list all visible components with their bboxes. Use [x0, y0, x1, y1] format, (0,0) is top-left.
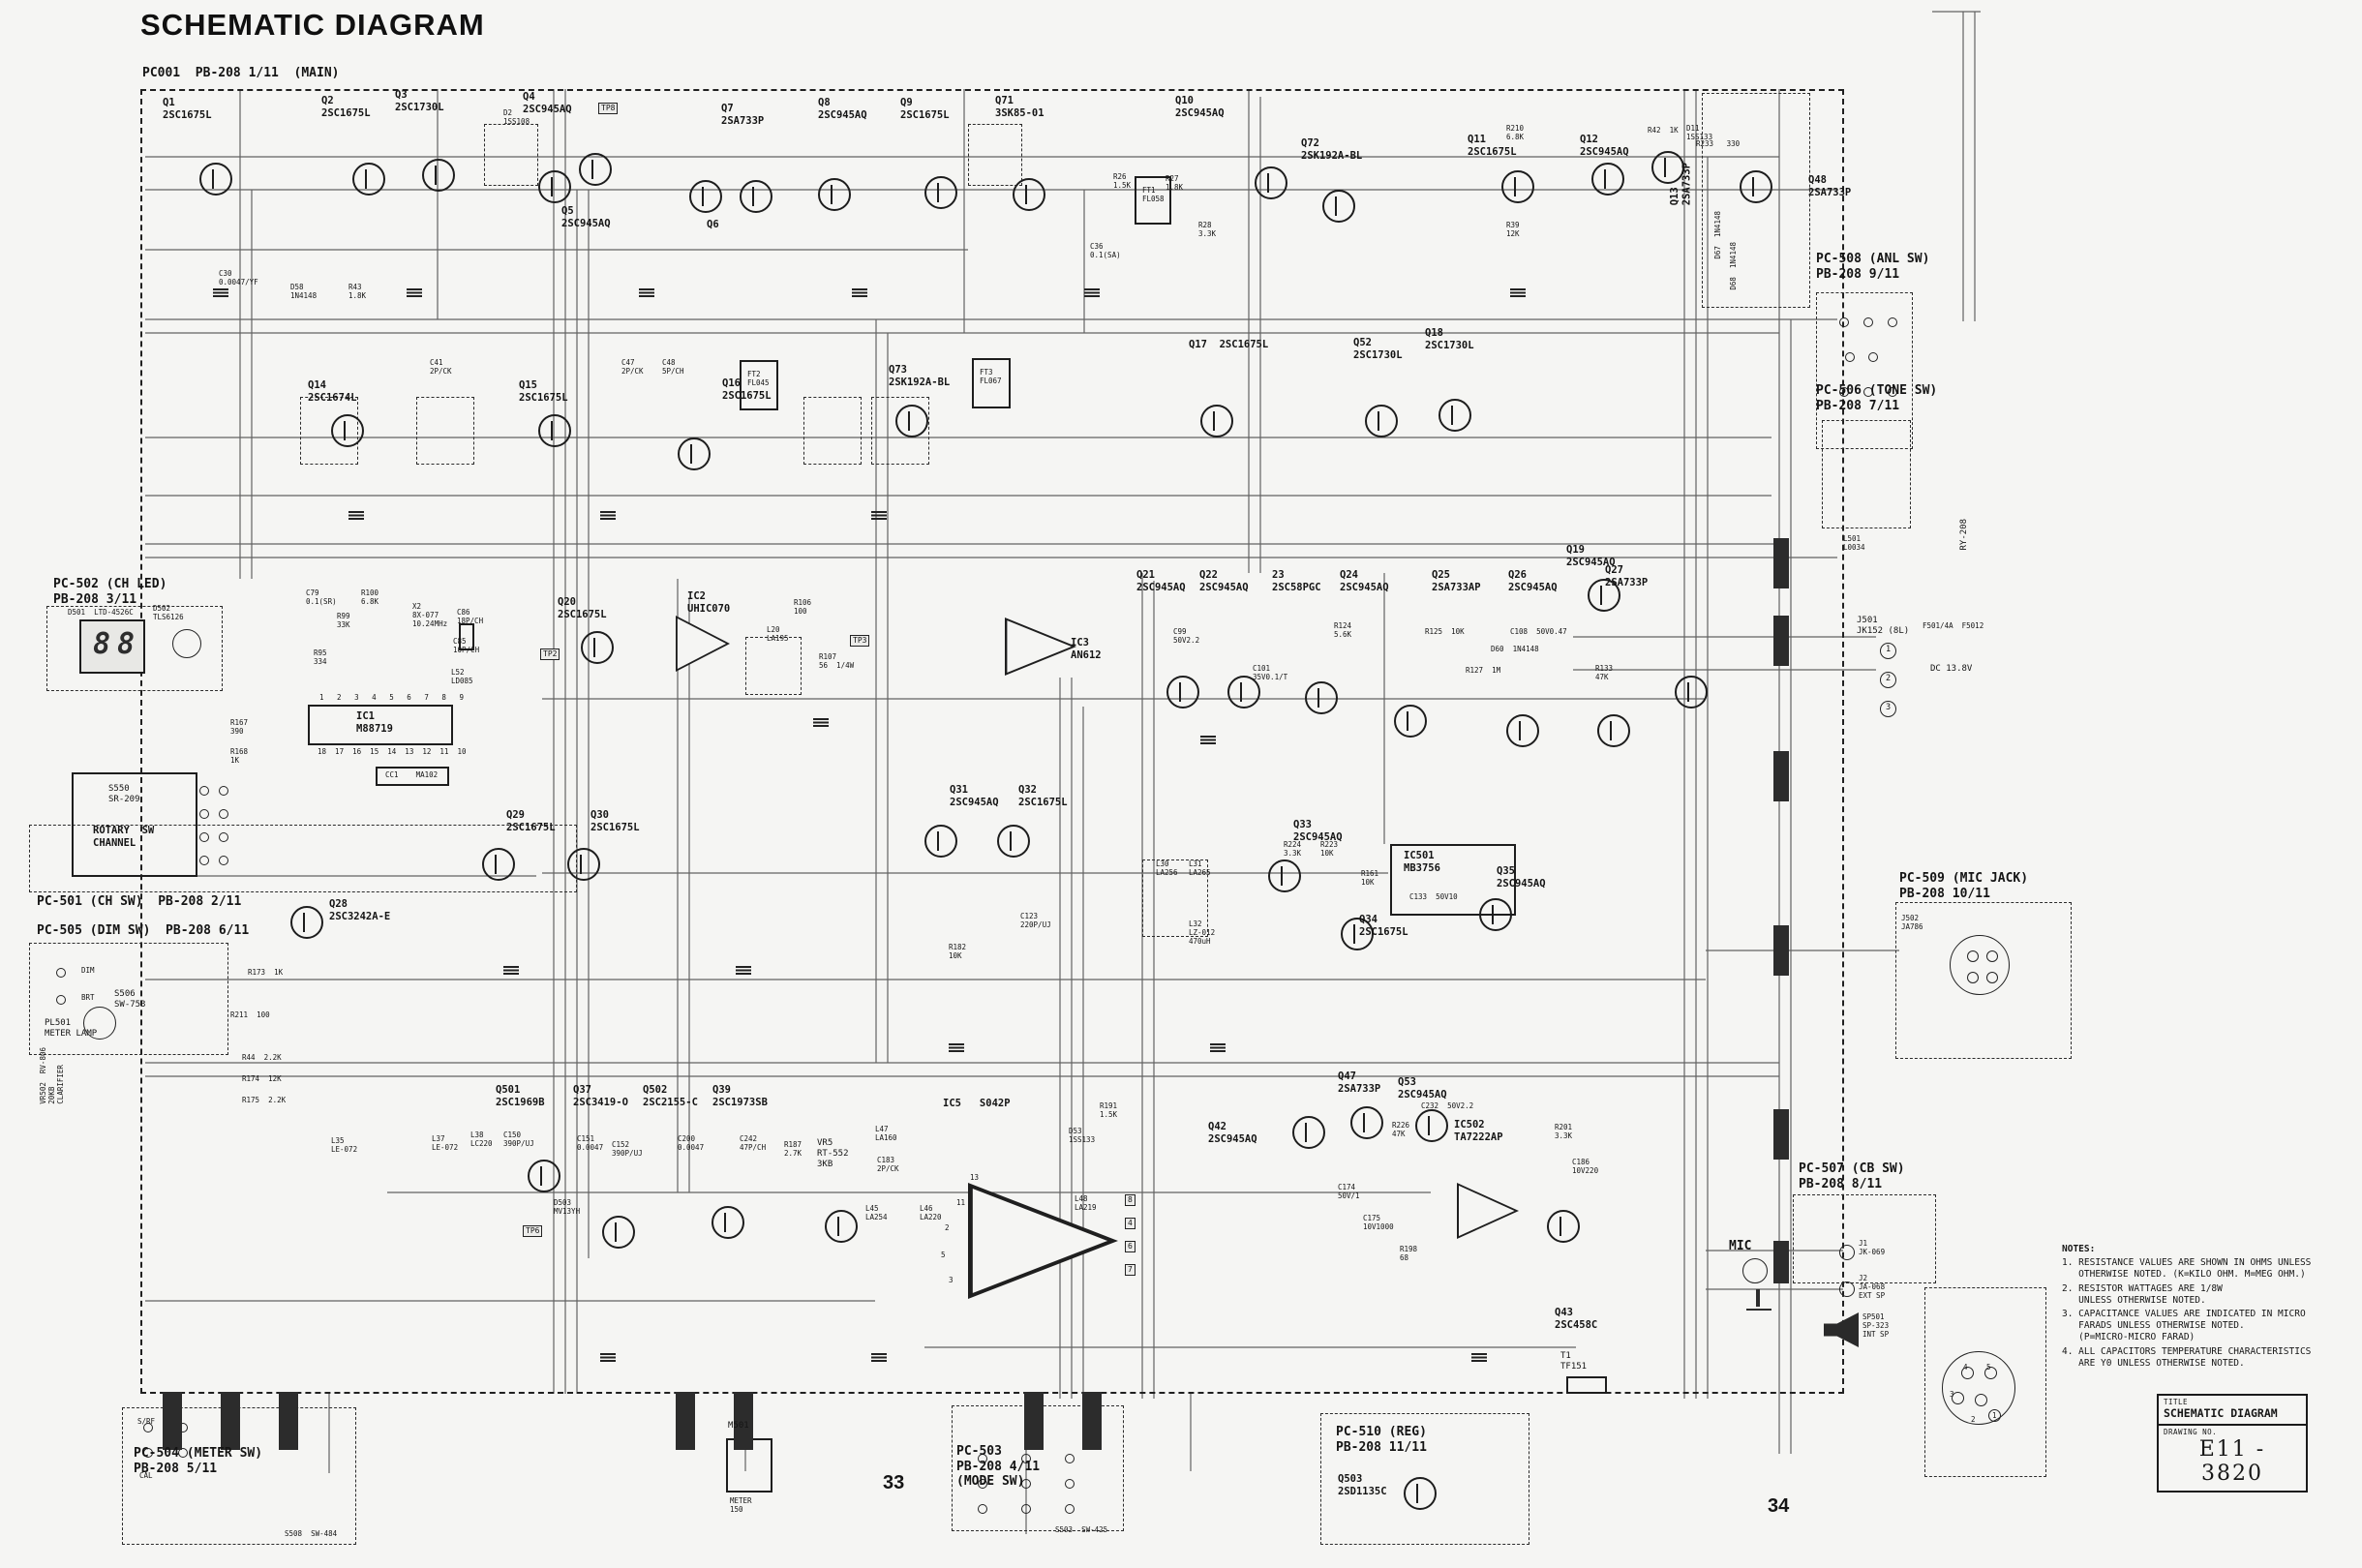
schematic-label: BRT — [81, 993, 95, 1002]
schematic-label: Q31 2SC945AQ — [950, 784, 999, 808]
board-label-pc507: PC-507 (CB SW) PB-208 8/11 — [1799, 1161, 1905, 1191]
gnd-symbol — [1200, 736, 1216, 744]
circle-symbol — [219, 832, 228, 842]
note-item: 4. ALL CAPACITORS TEMPERATURE CHARACTERI… — [2062, 1346, 2352, 1370]
schematic-label: Q13 2SA733P — [1669, 163, 1693, 205]
schematic-label: L501 L0034 — [1843, 534, 1865, 552]
schematic-label: J502 JA786 — [1901, 914, 1923, 931]
schematic-label: M501 — [728, 1421, 749, 1432]
schematic-label: L45 LA254 — [865, 1204, 888, 1221]
schematic-label: Q52 2SC1730L — [1353, 337, 1403, 361]
npn-symbol — [997, 825, 1030, 858]
npn-symbol — [538, 414, 571, 447]
schematic-label: IC2 UHIC070 — [687, 590, 730, 615]
schematic-label: 23 2SC58PGC — [1272, 569, 1321, 593]
npn-symbol — [895, 405, 928, 437]
schematic-label: C101 35V0.1/T — [1253, 664, 1287, 681]
drawing-title: SCHEMATIC DIAGRAM — [2164, 1406, 2301, 1420]
npn-symbol — [1292, 1116, 1325, 1149]
schematic-label: Q12 2SC945AQ — [1580, 134, 1629, 158]
schematic-label: R168 1K — [230, 747, 248, 765]
schematic-label: R107 56 1/4W — [819, 652, 854, 670]
schematic-label: R95 334 — [314, 648, 327, 666]
circle-symbol — [978, 1504, 987, 1514]
page-number-34: 34 — [1768, 1494, 1789, 1518]
schematic-label: R174 12K — [242, 1074, 282, 1083]
schematic-label: RY-208 — [1959, 519, 1970, 551]
schematic-label: R106 100 — [794, 598, 811, 616]
schematic-label: Q72 2SK192A-BL — [1301, 137, 1362, 162]
schematic-label: R173 1K — [248, 968, 283, 977]
gnd-symbol — [871, 511, 887, 520]
schematic-label: C183 2P/CK — [877, 1156, 899, 1173]
schematic-label: Q26 2SC945AQ — [1508, 569, 1558, 593]
schematic-label: R224 3.3K — [1284, 840, 1301, 858]
schematic-label: D58 1N4148 — [290, 283, 317, 300]
schematic-label: J1 JK-069 — [1859, 1239, 1885, 1256]
schematic-label: TP3 — [850, 635, 869, 647]
schematic-label: Q1 2SC1675L — [163, 97, 212, 121]
schematic-label: L31 LA265 — [1189, 859, 1211, 877]
gnd-symbol — [1210, 1043, 1226, 1052]
npn-symbol — [740, 180, 772, 213]
note-item: 2. RESISTOR WATTAGES ARE 1/8W UNLESS OTH… — [2062, 1283, 2352, 1307]
coil-can — [416, 397, 474, 465]
schematic-sheet: SCHEMATIC DIAGRAM PC001 PB-208 1/11 (MAI… — [0, 0, 2362, 1568]
schematic-label: L35 LE-072 — [331, 1136, 357, 1154]
gnd-symbol — [213, 288, 228, 297]
schematic-label: T1 TF151 — [1560, 1351, 1587, 1372]
schematic-label: MIC — [1729, 1239, 1751, 1254]
npn-symbol — [1394, 705, 1427, 738]
circle-symbol — [1967, 950, 1979, 962]
schematic-label: R28 3.3K — [1198, 221, 1216, 238]
npn-symbol — [199, 163, 232, 196]
connector-stub — [1773, 1241, 1789, 1283]
schematic-label: VR502 RV-806 20KB CLARIFIER — [39, 1047, 65, 1104]
gnd-symbol — [348, 511, 364, 520]
schematic-label: Q30 2SC1675L — [590, 809, 640, 833]
schematic-label: R44 2.2K — [242, 1053, 282, 1062]
circle-symbol — [56, 968, 66, 978]
npn-symbol — [352, 163, 385, 196]
schematic-label: Q8 2SC945AQ — [818, 97, 867, 121]
schematic-label: 18 17 16 15 14 13 12 11 10 — [318, 747, 467, 756]
connector-stub — [163, 1392, 182, 1450]
schematic-label: F501/4A F5012 — [1923, 621, 1983, 630]
connector-stub — [279, 1392, 298, 1450]
mic-base — [1746, 1309, 1771, 1311]
circle-symbol — [1986, 972, 1998, 983]
connector-stub — [1773, 538, 1789, 588]
schematic-label: J2 JA-068 EXT SP — [1859, 1274, 1885, 1300]
schematic-label: C151 0.0047 — [577, 1134, 603, 1152]
npn-symbol — [1597, 714, 1630, 747]
schematic-label: L48 LA219 — [1075, 1194, 1097, 1212]
circle-symbol — [1888, 317, 1897, 327]
connector-stub — [1082, 1392, 1102, 1450]
gnd-symbol — [813, 718, 829, 727]
npn-symbol — [1591, 163, 1624, 196]
schematic-label: Q20 2SC1675L — [558, 596, 607, 620]
npn-symbol — [567, 848, 600, 881]
schematic-label: 1 2 3 4 5 6 7 8 9 — [319, 693, 464, 702]
npn-symbol — [1740, 170, 1772, 203]
circle-symbol — [1863, 317, 1873, 327]
npn-symbol — [538, 170, 571, 203]
npn-symbol — [1415, 1109, 1448, 1142]
schematic-label: X2 8X-077 10.24MHz — [412, 602, 447, 628]
coil-can — [745, 637, 802, 695]
schematic-label: Q25 2SA733AP — [1432, 569, 1481, 593]
npn-symbol — [331, 414, 364, 447]
circle-symbol — [1065, 1504, 1075, 1514]
schematic-label: R133 47K — [1595, 664, 1613, 681]
ic5-label: IC5 S042P — [943, 1098, 1011, 1110]
circle-symbol — [199, 832, 209, 842]
npn-symbol — [1547, 1210, 1580, 1243]
schematic-label: J501 JK152 (8L) — [1857, 616, 1909, 637]
schematic-label: 2 — [1880, 672, 1896, 688]
npn-symbol — [924, 825, 957, 858]
schematic-label: C133 50V10 — [1409, 892, 1458, 901]
notes-heading: NOTES: — [2062, 1244, 2352, 1255]
connector-stub — [1773, 1109, 1789, 1160]
schematic-label: Q7 2SA733P — [721, 103, 764, 127]
schematic-label: R127 1M — [1466, 666, 1500, 675]
schematic-label: Q4 2SC945AQ — [523, 91, 572, 115]
npn-symbol — [579, 153, 612, 186]
schematic-label: C30 0.0047/YF — [219, 269, 258, 286]
gnd-symbol — [407, 288, 422, 297]
schematic-label: 7 — [1125, 1264, 1136, 1276]
schematic-label: PL501 METER LAMP — [45, 1018, 97, 1040]
schematic-label: L20 LA195 — [767, 625, 789, 643]
schematic-label: Q3 2SC1730L — [395, 89, 444, 113]
main-board-label: PC001 PB-208 1/11 (MAIN) — [142, 66, 340, 81]
schematic-label: 13 — [970, 1173, 979, 1182]
schematic-label: D60 1N4148 — [1491, 645, 1539, 653]
npn-symbol — [1438, 399, 1471, 432]
schematic-label: Q43 2SC458C — [1555, 1307, 1597, 1331]
title-block: TITLE SCHEMATIC DIAGRAM DRAWING NO. E11 … — [2157, 1394, 2308, 1493]
gnd-symbol — [639, 288, 654, 297]
schematic-label: L52 LD085 — [451, 668, 473, 685]
gnd-symbol — [1510, 288, 1526, 297]
d502-led — [172, 629, 201, 658]
board-label-pc509: PC-509 (MIC JACK) PB-208 10/11 — [1899, 871, 2028, 901]
schematic-label: C175 10V1000 — [1363, 1214, 1394, 1231]
schematic-label: 5 — [1986, 1363, 1991, 1372]
pc506-box — [1822, 420, 1911, 528]
schematic-label: Q17 2SC1675L — [1189, 339, 1268, 351]
note-item: 3. CAPACITANCE VALUES ARE INDICATED IN M… — [2062, 1309, 2352, 1343]
schematic-label: R175 2.2K — [242, 1096, 286, 1104]
schematic-label: C186 10V220 — [1572, 1158, 1598, 1175]
gnd-symbol — [852, 288, 867, 297]
schematic-label: L38 LC220 — [470, 1131, 493, 1148]
schematic-label: Q39 2SC1973SB — [712, 1084, 768, 1108]
schematic-label: S/RF — [137, 1417, 155, 1426]
circle-symbol — [1065, 1454, 1075, 1463]
schematic-label: R125 10K — [1425, 627, 1465, 636]
npn-symbol — [1404, 1477, 1437, 1510]
npn-symbol — [678, 437, 711, 470]
schematic-label: Q27 2SA733P — [1605, 564, 1648, 588]
schematic-label: Q10 2SC945AQ — [1175, 95, 1225, 119]
mic-head — [1742, 1258, 1768, 1283]
schematic-label: 4 — [1963, 1363, 1968, 1372]
npn-symbol — [528, 1160, 560, 1192]
npn-symbol — [1166, 676, 1199, 709]
schematic-label: Q73 2SK192A-BL — [889, 364, 950, 388]
schematic-label: R226 47K — [1392, 1121, 1409, 1138]
schematic-label: R42 1K — [1648, 126, 1679, 135]
schematic-label: Q9 2SC1675L — [900, 97, 950, 121]
ic501-label: IC501 MB3756 — [1404, 850, 1440, 874]
page-number-33: 33 — [883, 1471, 904, 1494]
schematic-label: R211 100 — [230, 1010, 270, 1019]
gnd-symbol — [736, 966, 751, 975]
circle-symbol — [199, 809, 209, 819]
schematic-label: Q48 2SA733P — [1808, 174, 1851, 198]
notes-block: NOTES: 1. RESISTANCE VALUES ARE SHOWN IN… — [2062, 1244, 2352, 1372]
schematic-label: C41 2P/CK — [430, 358, 452, 376]
npn-symbol — [924, 176, 957, 209]
npn-symbol — [689, 180, 722, 213]
schematic-label: Q21 2SC945AQ — [1136, 569, 1186, 593]
npn-symbol — [1013, 178, 1045, 211]
schematic-label: Q47 2SA733P — [1338, 1070, 1380, 1095]
schematic-label: Q29 2SC1675L — [506, 809, 556, 833]
schematic-label: D68 1N4148 — [1729, 242, 1738, 290]
board-label-pc503: PC-503 PB-208 4/11 (MODE SW) — [956, 1444, 1040, 1490]
schematic-label: FT2 FL045 — [747, 370, 770, 387]
schematic-label: IC3 AN612 — [1071, 637, 1102, 661]
circle-symbol — [1839, 317, 1849, 327]
jack-j1 — [1839, 1245, 1855, 1260]
gnd-symbol — [600, 1353, 616, 1362]
schematic-label: Q6 — [707, 219, 719, 231]
npn-symbol — [422, 159, 455, 192]
schematic-label: R198 68 — [1400, 1245, 1417, 1262]
ic1-label: IC1 M88719 — [356, 710, 393, 735]
schematic-label: Q28 2SC3242A-E — [329, 898, 390, 922]
schematic-label: Q71 3SK85-01 — [995, 95, 1045, 119]
circle-symbol — [219, 786, 228, 796]
coil-can — [803, 397, 862, 465]
connector-stub — [1773, 751, 1789, 801]
connector-stub — [676, 1392, 695, 1450]
title-caption: TITLE — [2164, 1398, 2301, 1406]
drawing-number: E11 - 3820 — [2164, 1436, 2301, 1489]
ic502-label: IC502 TA7222AP — [1454, 1119, 1503, 1143]
schematic-label: C152 390P/UJ — [612, 1140, 643, 1158]
schematic-label: D53 1SS133 — [1069, 1127, 1095, 1144]
schematic-label: S503 SW-425 — [1055, 1525, 1107, 1534]
circle-symbol — [199, 856, 209, 865]
schematic-label: 1 — [1880, 643, 1896, 659]
circle-symbol — [1021, 1504, 1031, 1514]
schematic-label: Q503 2SD1135C — [1338, 1473, 1387, 1497]
board-label-pc508: PC-508 (ANL SW) PB-208 9/11 — [1816, 252, 1929, 282]
schematic-label: Q2 2SC1675L — [321, 95, 371, 119]
npn-symbol — [1479, 898, 1512, 931]
mic-plug — [1942, 1351, 2015, 1425]
schematic-label: Q18 2SC1730L — [1425, 327, 1474, 351]
schematic-label: C242 47P/CH — [740, 1134, 766, 1152]
mic-stand — [1756, 1289, 1760, 1307]
npn-symbol — [1305, 681, 1338, 714]
schematic-label: 3 — [1880, 701, 1896, 717]
gnd-symbol — [600, 511, 616, 520]
schematic-label: Q53 2SC945AQ — [1398, 1076, 1447, 1101]
npn-symbol — [602, 1216, 635, 1249]
schematic-label: R43 1.8K — [348, 283, 366, 300]
circle-symbol — [1868, 352, 1878, 362]
schematic-label: 3 — [949, 1276, 954, 1284]
npn-symbol — [290, 906, 323, 939]
circle-symbol — [1065, 1479, 1075, 1489]
schematic-label: R99 33K — [337, 612, 350, 629]
schematic-label: Q502 2SC2155-C — [643, 1084, 698, 1108]
schematic-label: D503 MV13YH — [554, 1198, 580, 1216]
schematic-label: METER 150 — [730, 1496, 752, 1514]
gnd-symbol — [1471, 1353, 1487, 1362]
npn-symbol — [482, 848, 515, 881]
schematic-label: R26 1.5K — [1113, 172, 1131, 190]
schematic-label: Q501 2SC1969B — [496, 1084, 545, 1108]
schematic-label: C200 0.0047 — [678, 1134, 704, 1152]
schematic-label: CAL — [139, 1471, 153, 1480]
schematic-label: R182 10K — [949, 943, 966, 960]
schematic-label: FT3 FL067 — [980, 368, 1002, 385]
schematic-label: C108 50V0.47 — [1510, 627, 1567, 636]
gnd-symbol — [949, 1043, 964, 1052]
npn-symbol — [1501, 170, 1534, 203]
schematic-label: R191 1.5K — [1100, 1101, 1117, 1119]
channel-display-digits: 88 — [93, 627, 141, 662]
schematic-label: 5 — [941, 1251, 946, 1259]
connector-stub — [221, 1392, 240, 1450]
schematic-label: Q24 2SC945AQ — [1340, 569, 1389, 593]
schematic-label: Q22 2SC945AQ — [1199, 569, 1249, 593]
board-label-pc502: PC-502 (CH LED) PB-208 3/11 — [53, 577, 167, 607]
schematic-label: C47 2P/CK — [621, 358, 644, 376]
schematic-label: Q5 2SC945AQ — [561, 205, 611, 229]
schematic-label: R167 390 — [230, 718, 248, 736]
circle-symbol — [1986, 950, 1998, 962]
schematic-label: 3 — [1950, 1390, 1954, 1399]
circle-symbol — [1975, 1394, 1987, 1406]
connector-stub — [1773, 925, 1789, 976]
circle-symbol — [56, 995, 66, 1005]
schematic-label: CC1 MA102 — [385, 770, 438, 779]
schematic-label: 8 — [1125, 1194, 1136, 1206]
schematic-label: R27 1.8K — [1166, 174, 1183, 192]
npn-symbol — [1322, 190, 1355, 223]
circle-symbol — [219, 856, 228, 865]
npn-symbol — [825, 1210, 858, 1243]
t1-transformer — [1566, 1376, 1607, 1394]
schematic-label: Q35 2SC945AQ — [1497, 865, 1546, 890]
schematic-label: 4 — [1125, 1218, 1136, 1229]
mic-jack-j502 — [1950, 935, 2010, 995]
schematic-label: R201 3.3K — [1555, 1123, 1572, 1140]
schematic-label: Q32 2SC1675L — [1018, 784, 1068, 808]
npn-symbol — [1200, 405, 1233, 437]
schematic-label: TP6 — [523, 1225, 542, 1237]
connector-stub — [1773, 616, 1789, 666]
circle-symbol — [219, 809, 228, 819]
npn-symbol — [581, 631, 614, 664]
schematic-label: TP2 — [540, 648, 560, 660]
schematic-label: 6 — [1125, 1241, 1136, 1252]
schematic-label: Q14 2SC1674L — [308, 379, 357, 404]
schematic-label: R124 5.6K — [1334, 621, 1351, 639]
schematic-label: S506 SW-753 — [114, 989, 146, 1010]
schematic-label: Q15 2SC1675L — [519, 379, 568, 404]
schematic-label: 2 — [1971, 1415, 1976, 1424]
schematic-label: L37 LE-072 — [432, 1134, 458, 1152]
schematic-label: C86 18P/CH — [457, 608, 483, 625]
schematic-label: R223 10K — [1320, 840, 1338, 858]
npn-symbol — [712, 1206, 744, 1239]
schematic-label: ROTARY SW CHANNEL — [93, 825, 154, 849]
schematic-label: C232 50V2.2 — [1421, 1101, 1473, 1110]
gnd-symbol — [503, 966, 519, 975]
circle-symbol — [1967, 972, 1979, 983]
board-label-pc506: PC-506 (TONE SW) PB-208 7/11 — [1816, 383, 1937, 413]
schematic-label: TP8 — [598, 103, 618, 114]
schematic-label: SP501 SP-323 INT SP — [1862, 1312, 1889, 1339]
npn-symbol — [1350, 1106, 1383, 1139]
circle-symbol — [1845, 352, 1855, 362]
schematic-label: D2 1SS108 — [503, 108, 530, 126]
schematic-label: C85 10P/CH — [453, 637, 479, 654]
schematic-label: D502 TLS6126 — [153, 604, 184, 621]
schematic-label: L30 LA256 — [1156, 859, 1178, 877]
schematic-label: Q37 2SC3419-O — [573, 1084, 628, 1108]
npn-symbol — [1365, 405, 1398, 437]
schematic-label: S508 SW-484 — [285, 1529, 337, 1538]
schematic-label: C99 50V2.2 — [1173, 627, 1199, 645]
connector-stub — [1024, 1392, 1044, 1450]
schematic-label: R100 6.8K — [361, 588, 379, 606]
board-label-pc510: PC-510 (REG) PB-208 11/11 — [1336, 1425, 1427, 1455]
schematic-label: L46 LA220 — [920, 1204, 942, 1221]
npn-symbol — [1268, 859, 1301, 892]
schematic-label: L32 LZ-012 470uH — [1189, 920, 1215, 946]
schematic-label: C48 5P/CH — [662, 358, 684, 376]
schematic-label: R39 12K — [1506, 221, 1520, 238]
schematic-label: 1 — [1992, 1411, 1997, 1420]
schematic-label: 2 — [945, 1223, 950, 1232]
board-label-pc505: PC-505 (DIM SW) PB-208 6/11 — [37, 923, 249, 939]
schematic-label: R210 6.8K — [1506, 124, 1524, 141]
schematic-label: DC 13.8V — [1930, 664, 1972, 675]
schematic-label: DIM — [81, 966, 95, 975]
schematic-label: R161 10K — [1361, 869, 1378, 887]
note-item: 1. RESISTANCE VALUES ARE SHOWN IN OHMS U… — [2062, 1257, 2352, 1281]
coil-can — [484, 124, 538, 186]
board-label-pc501: PC-501 (CH SW) PB-208 2/11 — [37, 894, 241, 910]
schematic-label: L47 LA160 — [875, 1125, 897, 1142]
circle-symbol — [199, 786, 209, 796]
gnd-symbol — [1084, 288, 1100, 297]
schematic-label: Q42 2SC945AQ — [1208, 1121, 1257, 1145]
schematic-label: C150 390P/UJ — [503, 1131, 534, 1148]
